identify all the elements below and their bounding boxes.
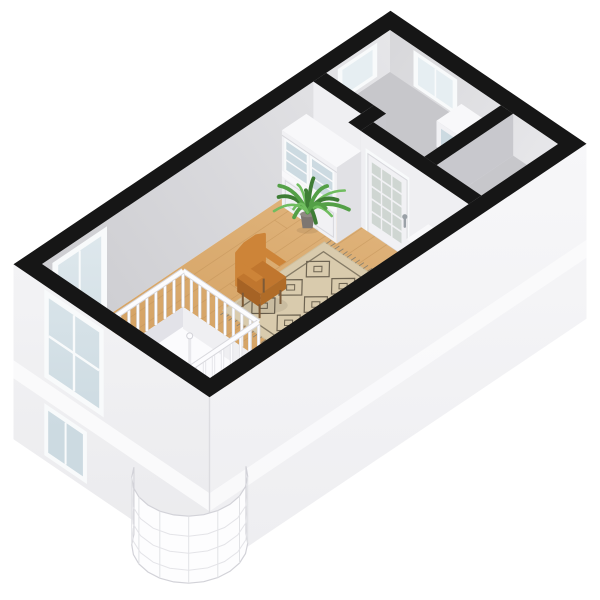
floorplan-canvas[interactable] [0, 0, 600, 600]
floorplan-3d-view [0, 0, 600, 600]
